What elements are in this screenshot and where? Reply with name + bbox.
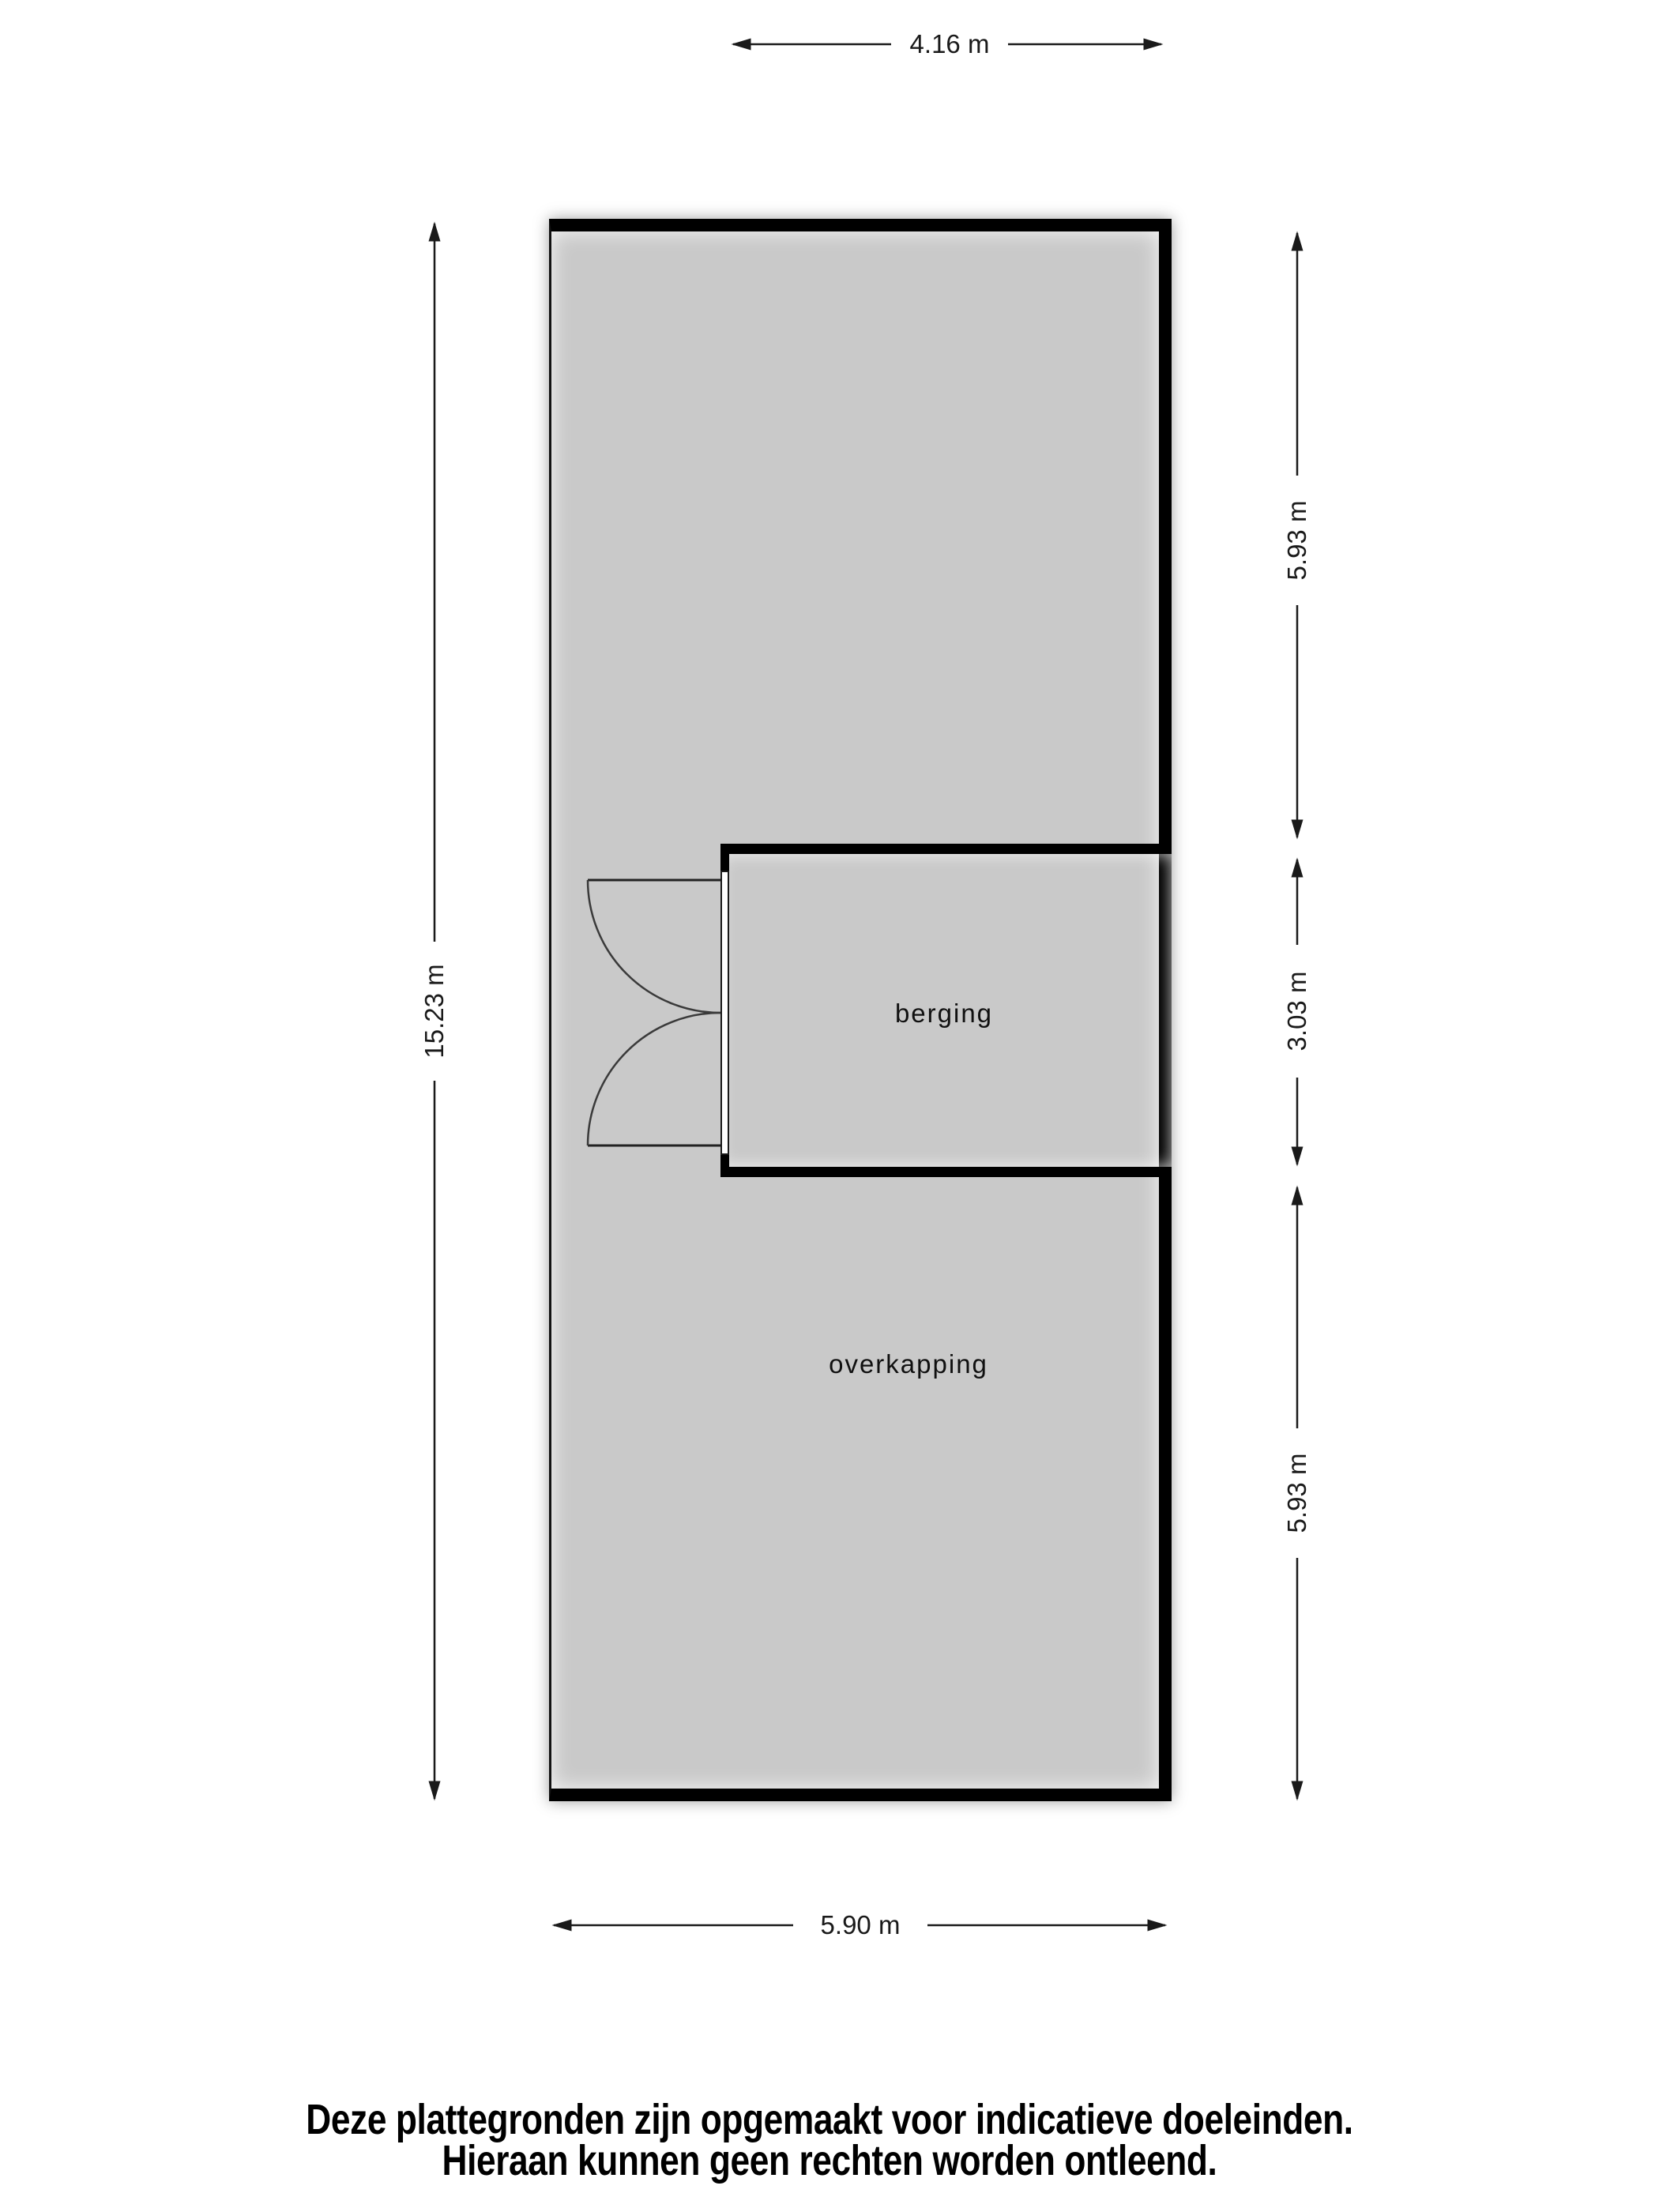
- dimension-lines: [434, 44, 1297, 1925]
- disclaimer-line-2: Hieraan kunnen geen rechten worden ontle…: [149, 2140, 1510, 2181]
- linework-svg: [0, 0, 1659, 2212]
- double-door-swing-icon: [588, 880, 720, 1145]
- floorplan-canvas: 4.16 m 15.23 m 5.93 m 3.03 m 5.93 m 5.90…: [0, 0, 1659, 2212]
- overkapping-label: overkapping: [829, 1349, 988, 1379]
- disclaimer-text: Deze plattegronden zijn opgemaakt voor i…: [149, 2099, 1510, 2181]
- berging-label: berging: [895, 999, 993, 1029]
- disclaimer-line-1: Deze plattegronden zijn opgemaakt voor i…: [149, 2099, 1510, 2140]
